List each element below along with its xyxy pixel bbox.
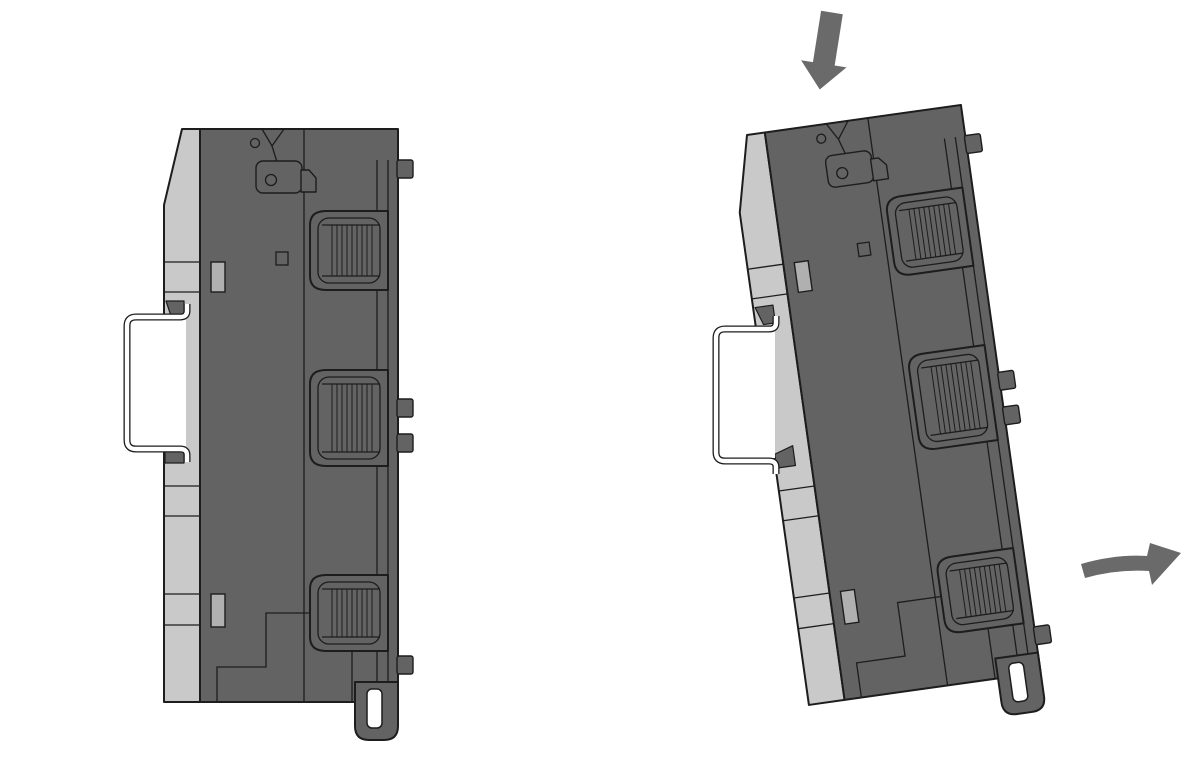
mounted-module [164, 129, 413, 740]
swing-out-arrow-icon [1081, 543, 1181, 585]
mounted-rail [127, 304, 187, 462]
tilted-module [729, 103, 1061, 743]
press-down-arrow-icon [797, 9, 855, 93]
diagram-canvas [0, 0, 1200, 764]
tilted-rail [716, 316, 776, 474]
din-rail-mounting-diagram [0, 0, 1200, 764]
figure-module-tilted [716, 103, 1061, 743]
figure-module-mounted [127, 129, 413, 740]
